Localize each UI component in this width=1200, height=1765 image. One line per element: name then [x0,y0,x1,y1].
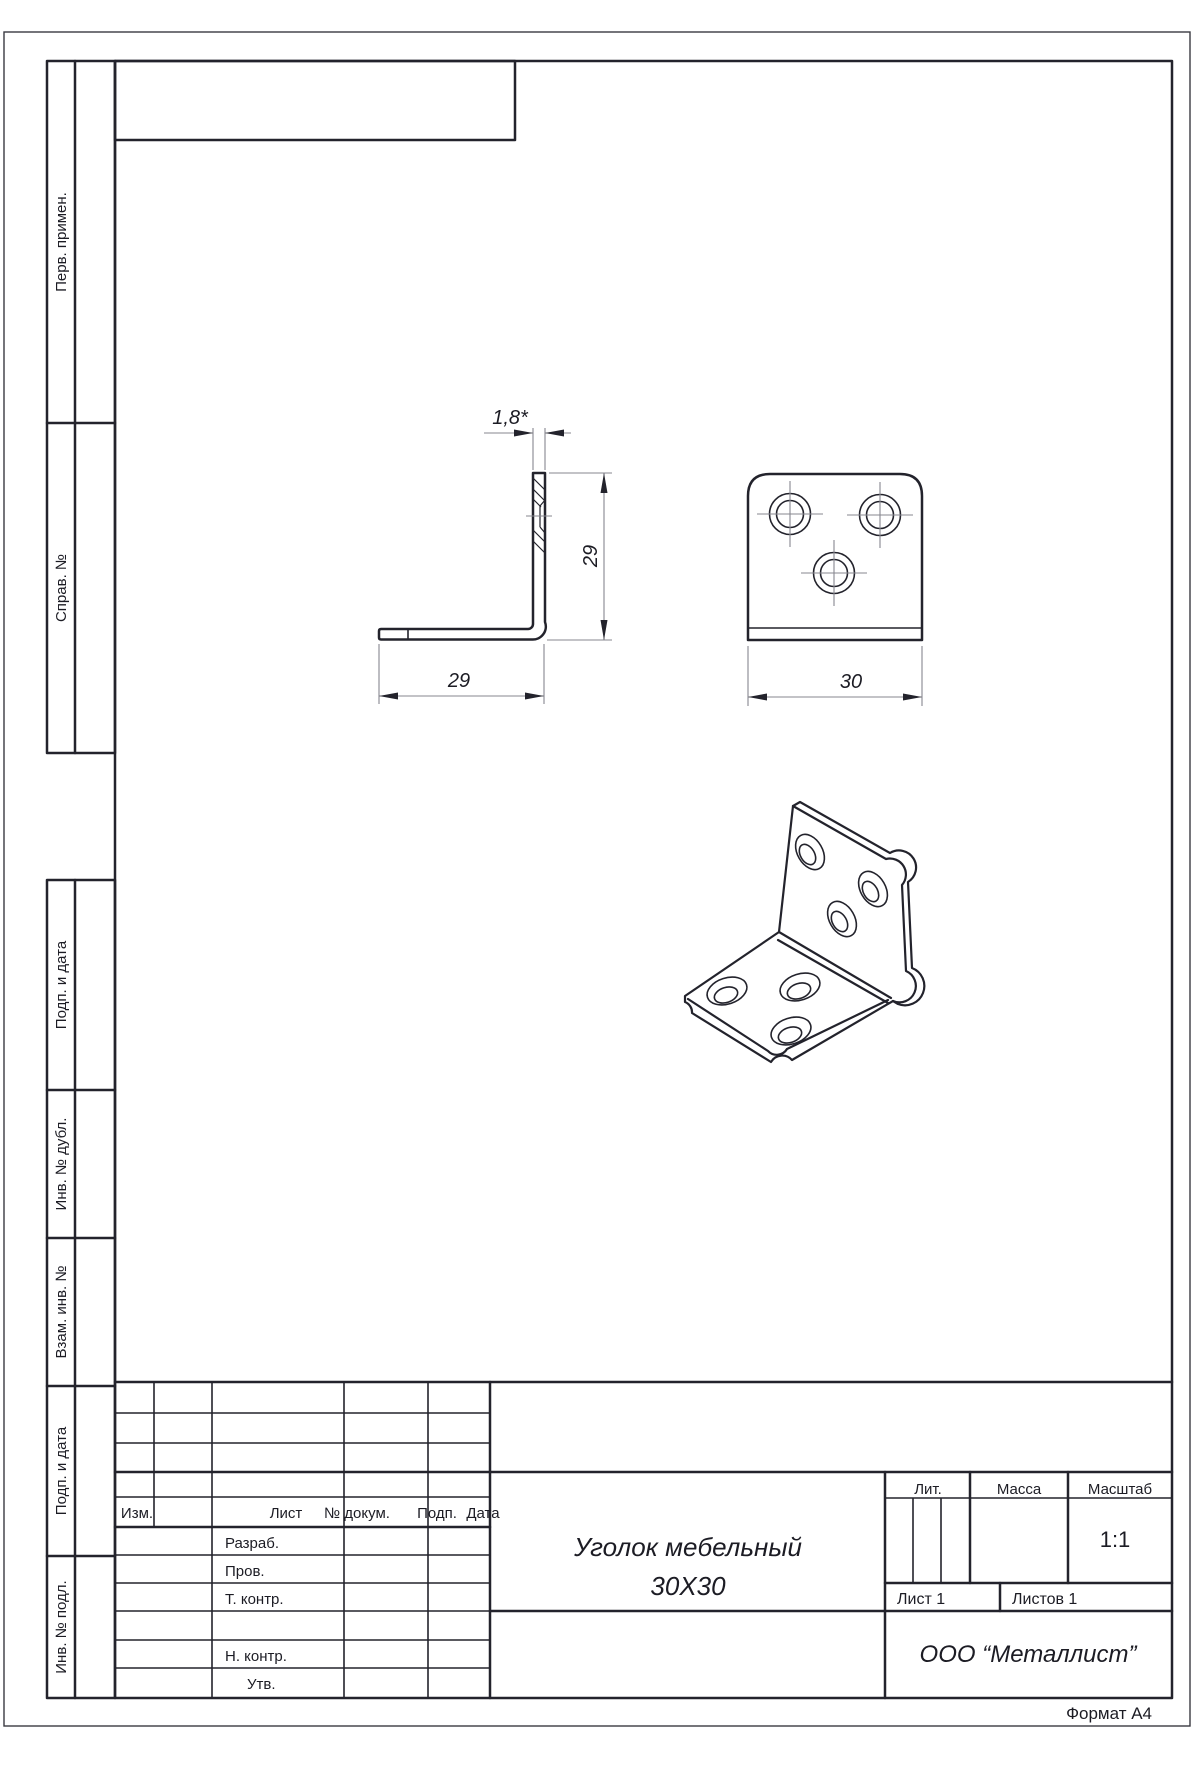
massa-label: Масса [997,1481,1042,1498]
iso-silhouette [685,806,916,1062]
scale-value: 1:1 [1100,1527,1131,1552]
company-name: ООО “Металлист” [920,1641,1138,1668]
margin-label-podp-i-data-2: Подп. и дата [53,1426,70,1515]
margin-label-podp-i-data-1: Подп. и дата [53,940,70,1029]
header-data: Дата [466,1505,500,1522]
hole-1 [757,481,823,547]
masshtab-label: Масштаб [1088,1481,1152,1498]
top-designation-box [115,61,515,140]
lit-label: Лит. [914,1481,942,1498]
side-view: 1,8* 29 29 [379,407,612,704]
dimension-length-text: 29 [447,670,470,692]
role-prov: Пров. [225,1563,265,1580]
header-izm: Изм. [121,1505,153,1522]
dimension-height: 29 [547,473,612,640]
front-view: 30 [748,474,922,706]
drawing-frame [115,61,1172,1698]
hole-3 [801,540,867,606]
part-title-line1: Уголок мебельный [573,1532,802,1562]
isometric-view [685,802,924,1062]
drawing-sheet: Перв. примен. Справ. № Подп. и дата Инв.… [0,0,1200,1760]
iso-flange-holes [703,968,823,1049]
header-podp: Подп. [417,1505,457,1522]
part-title-line2: 30Х30 [650,1571,726,1601]
front-view-outline [748,474,922,640]
margin-label-perv-primen: Перв. примен. [53,192,70,292]
role-razrab: Разраб. [225,1535,279,1552]
title-block: Изм. Лист № докум. Подп. Дата Разраб. Пр… [115,1382,1172,1698]
header-no-dokum: № докум. [324,1505,390,1522]
margin-label-inv-no-podl: Инв. № подл. [53,1580,70,1673]
sheet-number: Лист 1 [897,1591,945,1608]
dimension-width: 30 [748,646,922,706]
left-margin-columns: Перв. примен. Справ. № Подп. и дата Инв.… [47,61,115,1698]
header-list: Лист [270,1505,303,1522]
dimension-width-text: 30 [840,671,862,693]
role-n-kontr: Н. контр. [225,1648,287,1665]
margin-label-sprav-no: Справ. № [53,554,70,622]
sheets-total: Листов 1 [1012,1591,1077,1608]
iso-flange-edge [688,999,888,1055]
iso-fold-lines [778,932,891,1003]
hole-2 [847,482,913,548]
format-note: Формат А4 [1066,1704,1152,1723]
dimension-thickness: 1,8* [484,407,571,470]
role-t-kontr: Т. контр. [225,1591,284,1608]
gost-drawing: Перв. примен. Справ. № Подп. и дата Инв.… [0,0,1200,1760]
side-view-outline [379,473,546,640]
role-utv: Утв. [247,1676,276,1693]
margin-label-inv-no-dubl: Инв. № дубл. [53,1118,70,1211]
margin-label-vzam-inv-no: Взам. инв. № [53,1266,70,1359]
dimension-height-text: 29 [580,545,602,568]
dimension-length: 29 [379,644,544,704]
dimension-thickness-text: 1,8* [492,407,529,429]
